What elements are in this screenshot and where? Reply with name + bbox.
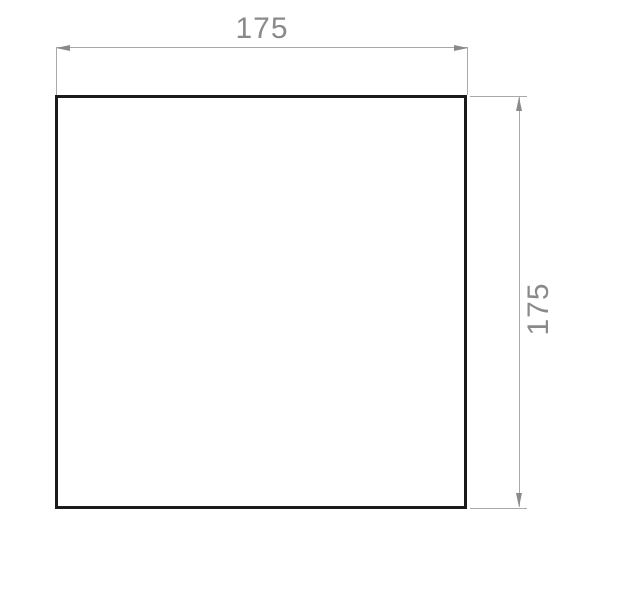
horizontal-dimension-line (56, 47, 468, 48)
vertical-dimension-label: 175 (523, 259, 555, 359)
square-outline (55, 95, 467, 509)
arrowhead-left-icon (56, 45, 70, 51)
vertical-dimension-line (519, 97, 520, 507)
technical-drawing-canvas: 175 175 (0, 0, 622, 600)
extension-line-right (467, 48, 468, 95)
arrowhead-up-icon (516, 97, 522, 111)
arrowhead-right-icon (454, 45, 468, 51)
arrowhead-down-icon (516, 493, 522, 507)
extension-line-bottom (470, 508, 527, 509)
extension-line-left (56, 48, 57, 95)
horizontal-dimension-label: 175 (212, 13, 312, 45)
